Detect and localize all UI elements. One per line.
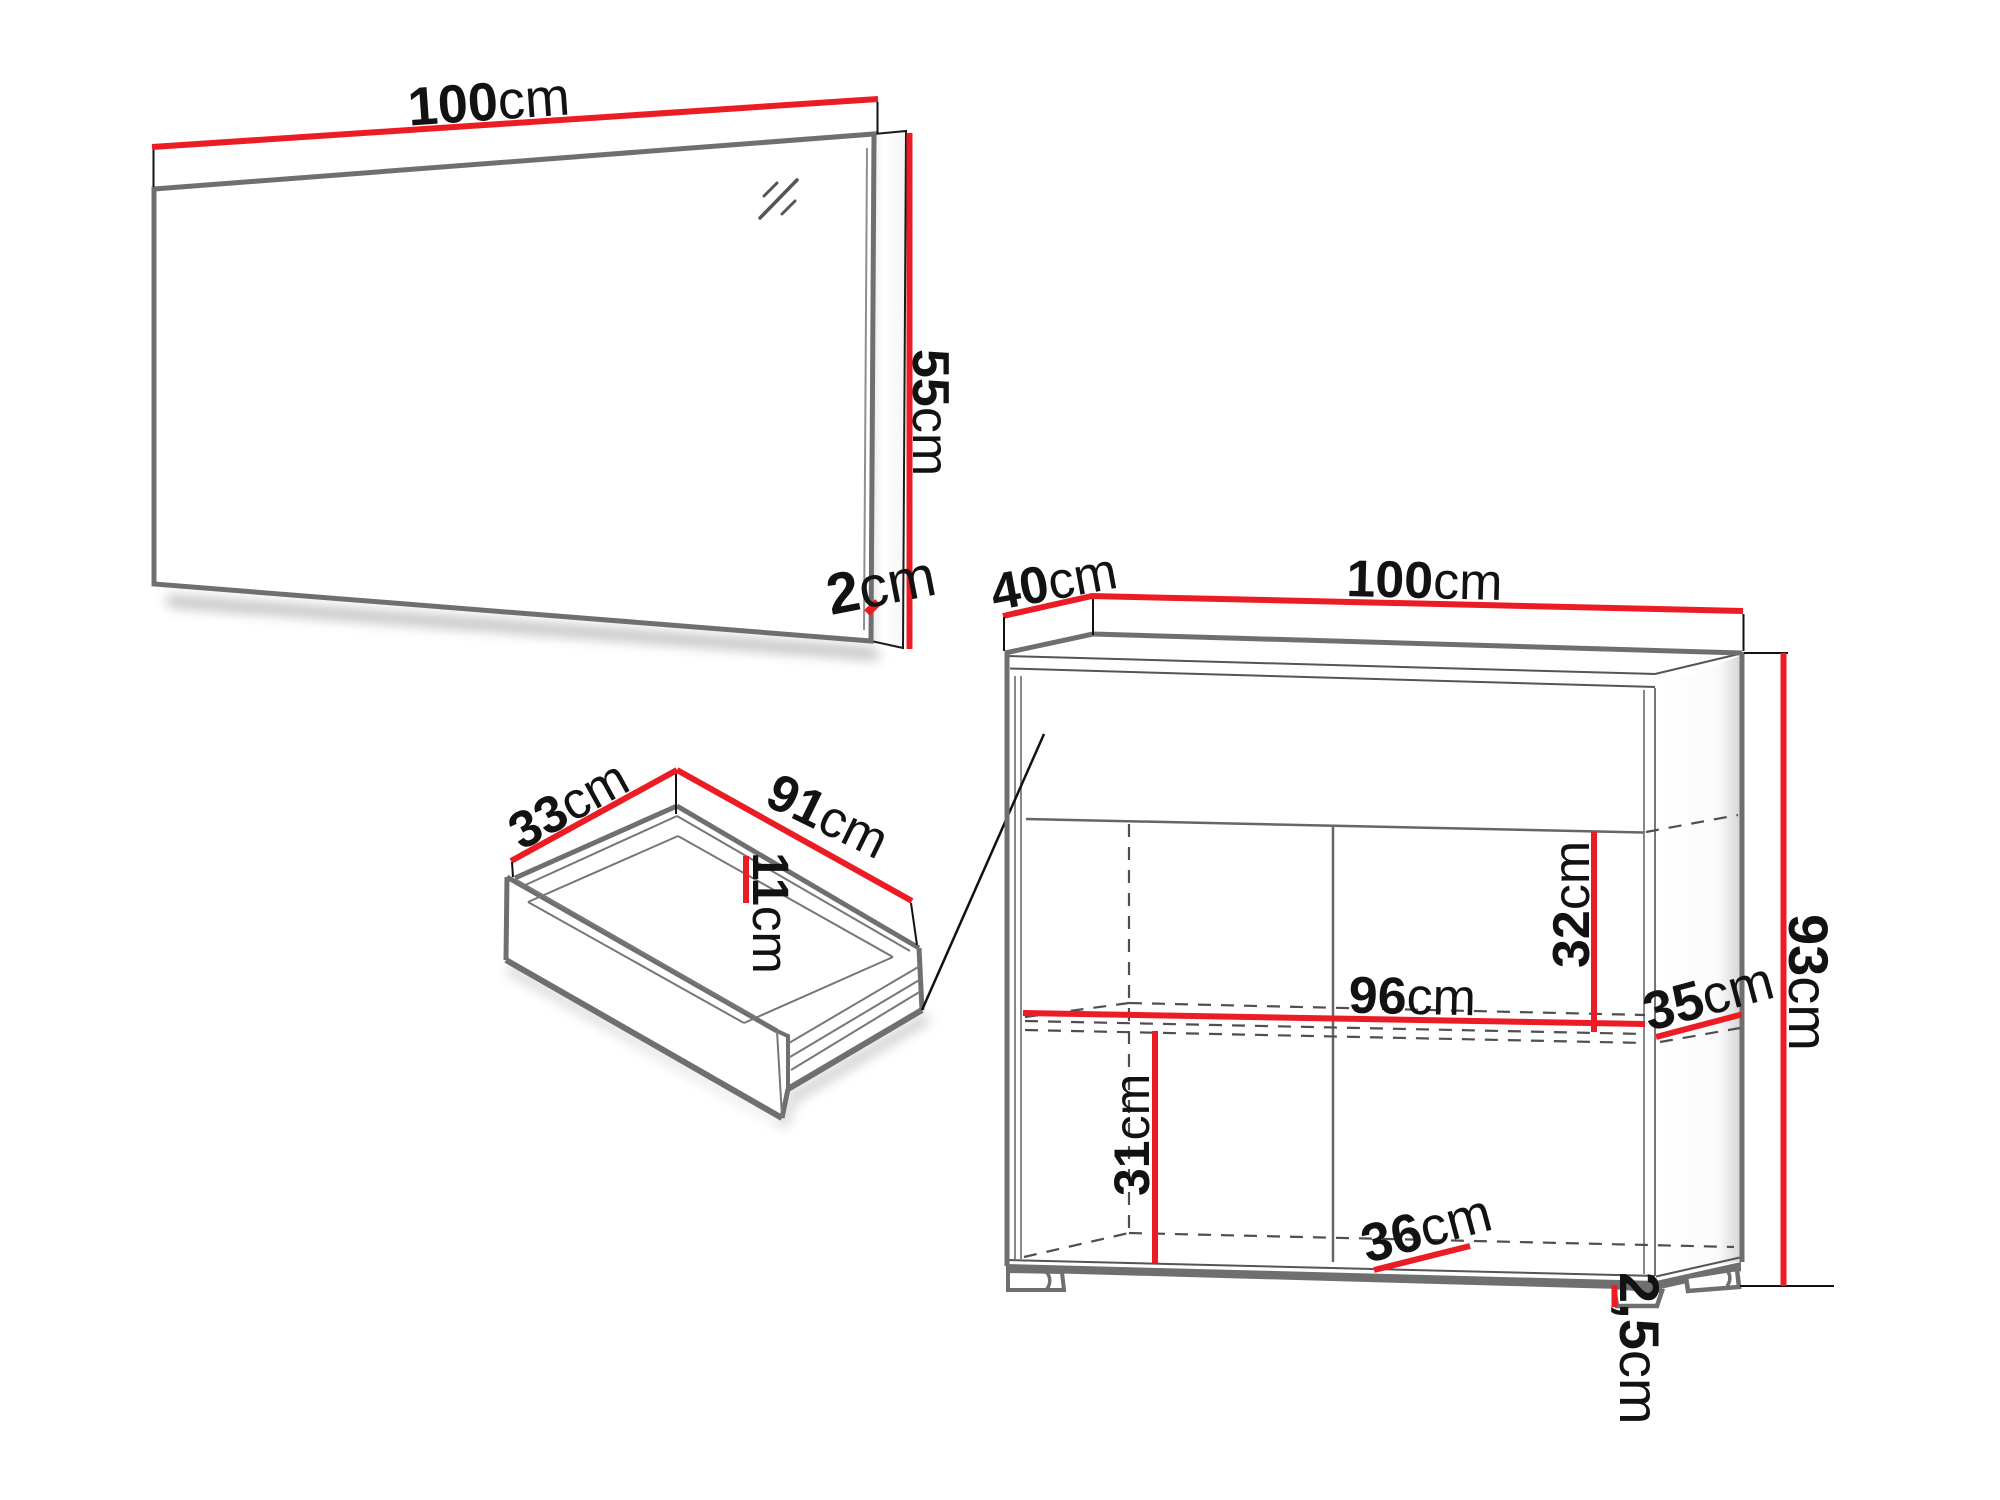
svg-text:93cm: 93cm: [1777, 914, 1840, 1051]
svg-text:2,5cm: 2,5cm: [1608, 1272, 1671, 1425]
svg-text:100cm: 100cm: [1346, 550, 1504, 612]
svg-text:96cm: 96cm: [1348, 967, 1476, 1028]
svg-text:31cm: 31cm: [1104, 1074, 1160, 1196]
svg-text:55cm: 55cm: [901, 349, 959, 476]
svg-text:32cm: 32cm: [1543, 841, 1601, 968]
svg-text:11cm: 11cm: [742, 852, 799, 974]
svg-text:100cm: 100cm: [406, 66, 572, 137]
